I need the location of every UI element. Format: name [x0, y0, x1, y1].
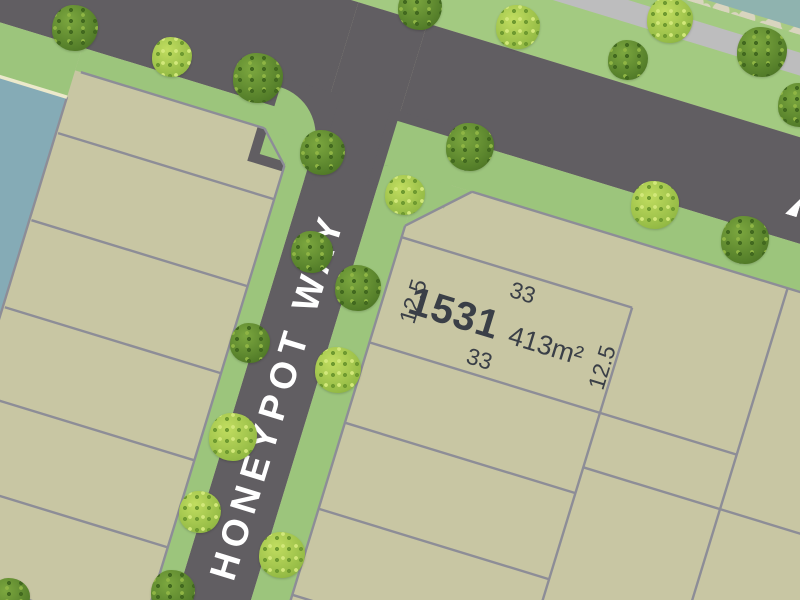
site-plan: HONEYPOT WAY 1531 413m² 33 33 12.5 12.5 — [0, 0, 800, 600]
estate-plat-map: HONEYPOT WAY 1531 413m² 33 33 12.5 12.5 — [0, 0, 800, 600]
